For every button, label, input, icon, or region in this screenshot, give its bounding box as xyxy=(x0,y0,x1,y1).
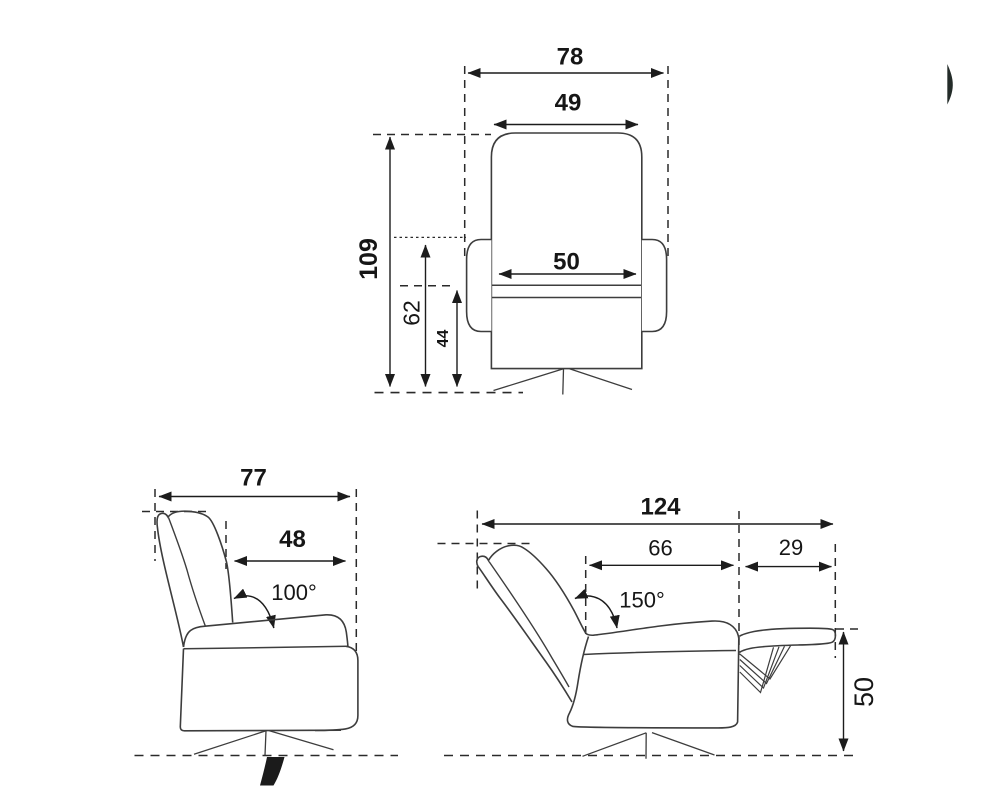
svg-text:49: 49 xyxy=(555,90,582,117)
svg-text:124: 124 xyxy=(640,494,681,521)
svg-text:50: 50 xyxy=(849,677,879,707)
svg-text:66: 66 xyxy=(648,535,672,560)
svg-text:100°: 100° xyxy=(271,580,317,605)
svg-text:109: 109 xyxy=(355,238,383,280)
svg-text:48: 48 xyxy=(279,526,306,553)
svg-text:78: 78 xyxy=(557,44,584,71)
svg-text:77: 77 xyxy=(240,465,267,492)
svg-text:62: 62 xyxy=(399,300,425,326)
svg-text:29: 29 xyxy=(779,535,803,560)
svg-text:150°: 150° xyxy=(619,588,665,613)
svg-text:44: 44 xyxy=(435,330,452,348)
svg-text:50: 50 xyxy=(553,249,580,276)
